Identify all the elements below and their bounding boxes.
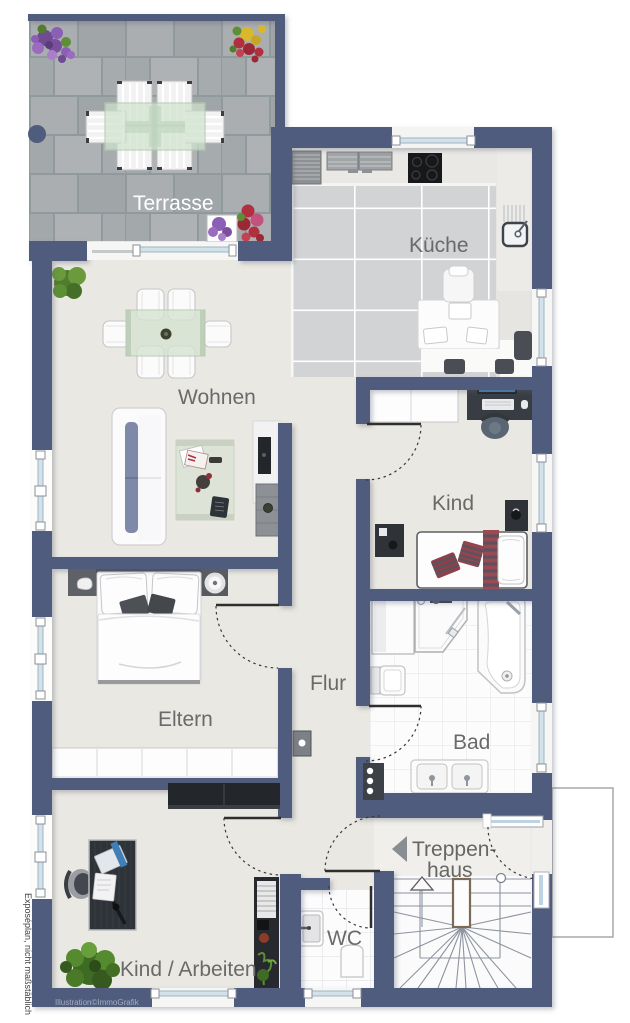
svg-text:Wohnen: Wohnen	[178, 386, 256, 409]
svg-text:Terrasse: Terrasse	[133, 192, 214, 215]
svg-text:Flur: Flur	[310, 672, 346, 695]
svg-text:Treppen-: Treppen-	[412, 838, 496, 861]
svg-text:haus: haus	[427, 859, 473, 882]
svg-text:Küche: Küche	[409, 234, 469, 257]
svg-text:Exposéplan, nicht maßstäblich: Exposéplan, nicht maßstäblich	[23, 893, 33, 1015]
svg-text:Illustration©ImmoGrafik: Illustration©ImmoGrafik	[55, 998, 140, 1007]
svg-text:Bad: Bad	[453, 731, 490, 754]
svg-text:Kind / Arbeiten: Kind / Arbeiten	[120, 958, 257, 981]
svg-text:Kind: Kind	[432, 492, 474, 515]
svg-text:WC: WC	[327, 927, 362, 950]
svg-text:Eltern: Eltern	[158, 708, 213, 731]
